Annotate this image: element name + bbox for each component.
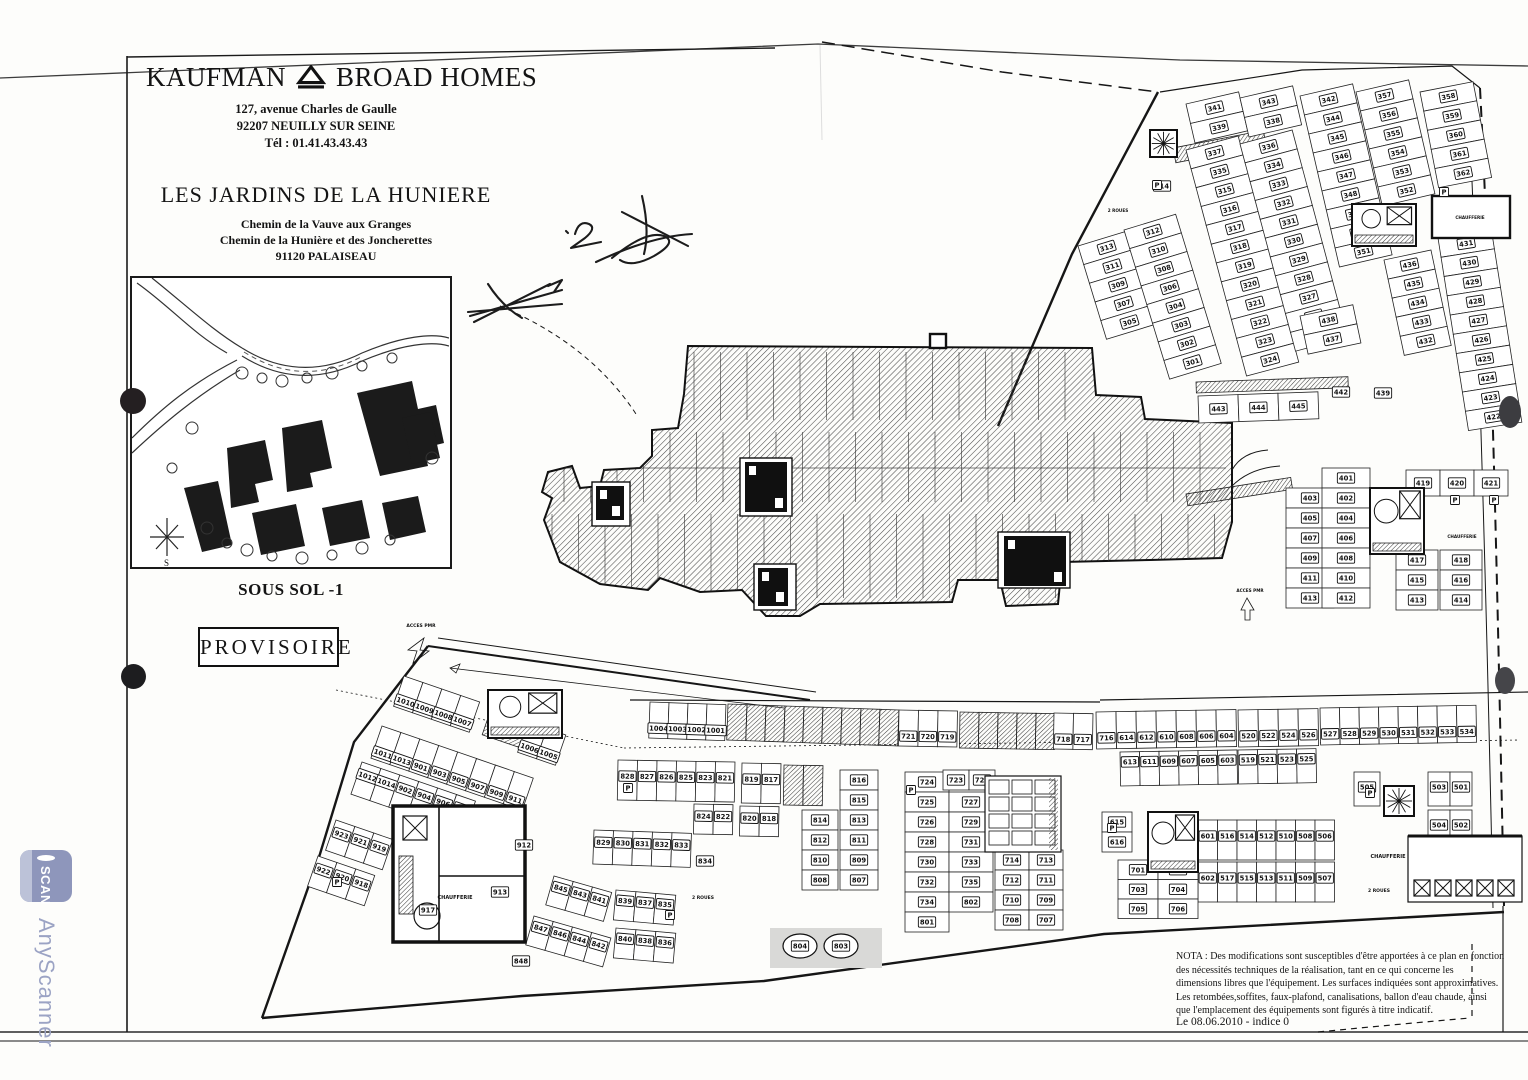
stall-number: 614 [1119,734,1134,742]
stall-number: 714 [1005,857,1019,865]
stall-number: 521 [1260,756,1275,764]
stall-number: 732 [920,879,934,887]
stall-number: 720 [921,733,936,741]
stall-number: 726 [920,819,934,827]
parking-row: 613611609607605603 [1120,750,1238,786]
stall-number: 402 [1339,495,1353,503]
brand-left: KAUFMAN [146,62,286,93]
stall-number: 1002 [687,726,706,735]
stall-number: 401 [1339,475,1353,483]
stall-number: 815 [852,797,866,805]
single-stall-label: 913 [491,887,508,897]
stall-number: 502 [1454,822,1468,830]
core-solid [758,568,788,606]
stall-number: 716 [1099,734,1114,742]
parking-stall [783,765,803,805]
parking-row: 602517515513511509507 [1198,862,1335,902]
parking-stall [879,709,899,746]
stall-number: 804 [793,943,807,951]
stall-number: 522 [1261,732,1276,740]
parking-stall [1016,713,1036,749]
stall-number: 701 [1131,866,1145,874]
single-stall-label: 848 [512,956,529,966]
stall-number: 527 [1323,730,1338,738]
stall-number: 839 [618,897,633,906]
stall-number: 829 [596,839,611,847]
building-mass [542,346,1232,616]
core-lockers [985,776,1061,852]
plan-label: CHAUFFERIE [437,895,473,901]
svg-text:P: P [1155,182,1160,190]
parking-row: 816815813811809807 [840,770,878,890]
parking-row: 1010100910081007 [393,676,480,733]
parking-p-icon: P [1440,188,1449,197]
stall-number: 407 [1303,535,1317,543]
core-caves [1408,836,1522,902]
parking-p-icon: P [1108,824,1117,833]
core-mix [1148,812,1198,872]
stall-number: 723 [949,777,963,785]
stall-number: 832 [655,841,670,849]
brand-right: BROAD HOMES [336,62,537,93]
stall-number: 612 [1139,733,1154,741]
stall-number: 821 [718,774,733,782]
stall-number: 442 [1334,389,1348,397]
stall-number: 506 [1318,833,1332,841]
stall-number: 516 [1220,833,1234,841]
stall-number: 1003 [668,725,687,734]
nota-line: Les retombées,soffites, faux-plafond, ca… [1176,991,1516,1005]
stall-number: 419 [1416,480,1430,488]
stall-number: 445 [1291,402,1306,410]
plan-label: ACCES PMR [406,623,436,629]
stall-number: 514 [1240,833,1254,841]
single-stall-label: 439 [1374,388,1391,398]
parking-row: 520522524526 [1238,709,1319,747]
stall-number: 814 [813,817,827,825]
stall-number: 420 [1450,480,1464,488]
stall-number: 531 [1401,729,1416,737]
stall-number: 735 [964,879,978,887]
stall-number: 717 [1076,736,1091,744]
motorcycle-spots: 804803 [770,928,882,968]
plan-label: 2 ROUES [692,895,714,901]
stall-number: 409 [1303,555,1317,563]
stall-number: 834 [698,858,712,866]
stall-number: 533 [1440,728,1455,736]
parking-stall [803,765,823,805]
stall-number: 802 [964,899,978,907]
stall-number: 443 [1211,405,1226,413]
stall-number: 503 [1432,784,1446,792]
stall-number: 526 [1301,731,1316,739]
parking-row: 436435434433432 [1384,250,1451,355]
parking-stall [727,704,747,741]
parking-row: 343338 [1240,86,1302,137]
svg-text:P: P [1110,825,1115,833]
parking-row [959,712,1055,750]
parking-row: 724725726728730732734801 [905,772,949,932]
stall-number: 403 [1303,495,1317,503]
stall-number: 416 [1454,577,1468,585]
stall-number: 718 [1056,736,1071,744]
stall-number: 707 [1039,917,1053,925]
stall-number: 414 [1454,597,1468,605]
provisoire-stamp: PROVISOIRE [198,627,339,667]
stall-number: 835 [657,900,672,909]
plan-label: CHAUFFERIE [1455,215,1484,220]
stall-number: 534 [1460,728,1475,736]
parking-stall [1035,713,1055,749]
stall-number: 730 [920,859,934,867]
core-mix [1352,204,1416,246]
stall-number: 406 [1339,535,1353,543]
plan-label: ACCES PMR [1236,588,1264,593]
stall-number: 820 [742,815,757,823]
level-label: SOUS SOL -1 [130,580,452,600]
parking-stall [997,713,1017,749]
stall-number: 828 [620,773,635,781]
project-address-line: Chemin de la Hunière et des Joncherettes [146,232,506,248]
stall-number: 822 [716,813,731,821]
company-brand: KAUFMAN BROAD HOMES [146,62,546,93]
stall-number: 818 [762,815,777,823]
anyscanner-watermark: SCAN AnyScanner [20,850,72,1080]
svg-text:P: P [335,879,340,887]
stall-number: 532 [1421,728,1436,736]
parking-row: 718717 [1053,713,1093,750]
stall-number: 520 [1241,732,1256,740]
parking-p-icon: P [333,878,342,887]
parking-stall [822,707,842,744]
project-address-line: 91120 PALAISEAU [146,248,506,264]
scan-icon-label: SCAN [39,866,54,905]
parking-p-icon: P [1153,181,1162,190]
stall-number: 504 [1432,822,1446,830]
parking-stall [765,705,785,742]
plan-label: 2 ROUES [1368,888,1390,894]
date-indice: Le 08.06.2010 - indice 0 [1176,1016,1289,1028]
single-stall-label: 442 [1332,387,1349,397]
plan-label: CHAUFFERIE [1370,854,1406,860]
parking-row: 1004100310021001 [648,702,728,741]
stall-number: 601 [1201,833,1215,841]
stall-number: 831 [635,840,650,848]
svg-text:S: S [164,558,169,566]
parking-row: 713711709707 [1029,850,1063,930]
parking-row: 527528529530531532533534 [1320,705,1477,745]
stall-number: 823 [698,774,713,782]
stall-number: 404 [1339,515,1353,523]
svg-text:P: P [1368,790,1373,798]
stall-number: 411 [1303,575,1317,583]
parking-row: 401402404406408410412 [1322,468,1370,608]
svg-text:P: P [626,785,631,793]
stall-number: 413 [1303,595,1317,603]
stall-number: 508 [1298,833,1312,841]
parking-stall [746,705,766,742]
stall-number: 825 [679,774,694,782]
parking-row: 443444445 [1198,392,1319,423]
stall-number: 708 [1005,917,1019,925]
stall-number: 444 [1251,404,1266,412]
stall-number: 724 [920,779,934,787]
address-line: Tél : 01.41.43.43.43 [146,135,486,152]
stall-number: 712 [1005,877,1019,885]
svg-text:P: P [668,912,673,920]
stall-number: 727 [964,799,978,807]
parking-stall [978,712,998,748]
stall-number: 913 [493,889,507,897]
stall-number: 501 [1454,784,1468,792]
core-mix [1370,488,1424,554]
watermark-app-name: AnyScanner [33,918,59,1048]
stall-number: 413 [1410,597,1424,605]
single-stall-label: 912 [515,840,532,850]
stall-number: 705 [1131,905,1145,913]
stall-number: 525 [1299,755,1314,763]
stall-number: 704 [1171,886,1185,894]
nota-line: des nécessités techniques de la réalisat… [1176,964,1516,978]
project-address: Chemin de la Vauve aux Granges Chemin de… [146,216,506,264]
stall-number: 917 [421,907,435,915]
stall-number: 608 [1179,733,1194,741]
stall-number: 719 [940,733,955,741]
parking-row: 615616 [1102,812,1132,852]
parking-stall [860,709,880,746]
stall-number: 611 [1142,758,1157,766]
stall-number: 509 [1298,875,1312,883]
company-address: 127, avenue Charles de Gaulle 92207 NEUI… [146,101,486,152]
parking-row: 418416414 [1440,550,1482,610]
core-solid [1004,536,1066,586]
plan-label: CHAUFFERIE [1447,534,1476,539]
stall-number: 417 [1410,557,1424,565]
stall-number: 517 [1220,875,1234,883]
stall-number: 807 [852,877,866,885]
parking-row: 601516514512510508506 [1198,820,1335,860]
parking-row [727,704,899,746]
stall-number: 609 [1162,758,1177,766]
stall-number: 606 [1199,732,1214,740]
stall-number: 412 [1339,595,1353,603]
stall-number: 810 [813,857,827,865]
stall-number: 826 [659,773,674,781]
stall-number: 602 [1201,875,1215,883]
kaufman-broad-logo-icon [296,65,326,90]
stall-number: 816 [852,777,866,785]
parking-row: 829830831832833 [593,830,692,867]
parking-p-icon: P [624,784,633,793]
stall-number: 848 [514,958,528,966]
stall-number: 410 [1339,575,1353,583]
stall-number: 808 [813,877,827,885]
parking-row: 845843841 [546,876,612,921]
single-stall-label: 917 [419,905,436,915]
location-inset-map: S [130,276,452,569]
stall-number: 838 [638,936,653,945]
parking-stall [841,708,861,745]
hole-punch [1499,396,1521,428]
stall-number: 529 [1362,730,1377,738]
stall-number: 519 [1241,756,1256,764]
parking-p-icon: P [1366,789,1375,798]
stall-number: 610 [1159,733,1174,741]
anyscanner-icon: SCAN [20,850,72,902]
single-stall-label: 834 [696,856,713,866]
stall-number: 706 [1171,905,1185,913]
stall-number: 607 [1181,757,1196,765]
parking-row: 840838836 [613,928,675,963]
parking-stall [803,707,823,744]
svg-text:P: P [1453,497,1458,505]
stall-number: 833 [674,841,689,849]
stall-number: 405 [1303,515,1317,523]
parking-p-icon: P [666,911,675,920]
stall-number: 523 [1280,756,1295,764]
project-title: LES JARDINS DE LA HUNIERE [146,182,506,208]
stall-number: 840 [618,935,633,944]
stall-number: 830 [616,839,631,847]
scanned-plan-page: 3133113093073053123103083063043033023013… [0,0,1528,1080]
nota-line: NOTA : Des modifications sont susceptibl… [1176,950,1516,964]
stall-number: 711 [1039,877,1053,885]
parking-row: 503501 [1428,772,1472,806]
stall-number: 710 [1005,897,1019,905]
stall-number: 819 [744,776,759,784]
stall-number: 709 [1039,897,1053,905]
hole-punch [1495,667,1515,694]
stall-number: 513 [1259,875,1273,883]
parking-row: 716614612610608606604 [1096,710,1237,749]
stall-number: 439 [1376,390,1390,398]
stall-number: 728 [920,839,934,847]
stall-number: 530 [1382,729,1397,737]
nota-line: dimensions libres que l'équipement. Les … [1176,977,1516,991]
stall-number: 605 [1201,757,1216,765]
letterhead: KAUFMAN BROAD HOMES 127, avenue Charles … [146,62,546,264]
stall-number: 817 [764,776,779,784]
stall-number: 811 [852,837,866,845]
compass-icon [150,518,184,556]
stall-number: 421 [1484,480,1498,488]
stall-number: 515 [1240,875,1254,883]
parking-row: 721720719 [898,710,957,747]
stall-number: 415 [1410,577,1424,585]
parking-row: 519521523525 [1238,749,1317,784]
stall-number: 813 [852,817,866,825]
stall-number: 713 [1039,857,1053,865]
parking-row: 814812810808 [802,810,838,890]
address-line: 127, avenue Charles de Gaulle [146,101,486,118]
core-room [930,334,946,348]
stall-number: 809 [852,857,866,865]
stall-number: 512 [1259,833,1273,841]
parking-row [783,765,823,806]
parking-row: 820818 [739,806,779,837]
project-address-line: Chemin de la Vauve aux Granges [146,216,506,232]
svg-text:P: P [1492,497,1497,505]
stall-number: 803 [834,943,848,951]
hatched-strip [1196,377,1348,393]
stall-number: 721 [901,733,916,741]
parking-row: 824822 [693,804,733,835]
stall-number: 604 [1219,732,1234,740]
plan-label: 2 ROUES [1108,208,1128,213]
hole-punch [121,664,146,689]
parking-row: 828827826825823821 [617,760,735,802]
stall-number: 511 [1279,875,1293,883]
parking-row: 847846844842 [526,916,611,967]
stall-number: 524 [1281,731,1296,739]
stall-number: 837 [638,898,653,907]
stall-number: 824 [696,813,711,821]
stall-number: 1001 [706,726,725,735]
stall-number: 801 [920,919,934,927]
stall-number: 507 [1318,875,1332,883]
stall-number: 1004 [649,724,668,733]
parking-row: 819817 [741,763,781,804]
svg-text:P: P [1442,189,1447,197]
parking-p-icon: P [907,786,916,795]
stall-number: 812 [813,837,827,845]
parking-stall [959,712,979,748]
hole-punch [120,388,146,414]
core-big [393,806,525,942]
stall-number: 603 [1220,756,1235,764]
stall-number: 703 [1131,886,1145,894]
stall-number: 418 [1454,557,1468,565]
stall-number: 510 [1279,833,1293,841]
stall-number: 912 [517,842,531,850]
stall-number: 734 [920,899,934,907]
parking-stall [784,706,804,743]
address-line: 92207 NEUILLY SUR SEINE [146,118,486,135]
stall-number: 827 [640,773,655,781]
stall-number: 725 [920,799,934,807]
stall-number: 733 [964,859,978,867]
stall-number: 408 [1339,555,1353,563]
core-fan [1384,786,1414,816]
core-solid [596,486,624,520]
nota-block: NOTA : Des modifications sont susceptibl… [1176,950,1516,1018]
core-fan [1150,130,1177,157]
parking-p-icon: P [1490,496,1499,505]
core-mix [488,690,562,738]
parking-p-icon: P [1451,496,1460,505]
camera-lens-icon [37,855,55,861]
stall-number: 613 [1123,758,1138,766]
svg-text:P: P [909,787,914,795]
stall-number: 616 [1110,839,1124,847]
stall-number: 836 [657,938,672,947]
parking-row: 714712710708 [995,850,1029,930]
parking-row: 417415413 [1396,550,1438,610]
stall-number: 528 [1343,730,1358,738]
stall-number: 731 [964,839,978,847]
stall-number: 729 [964,819,978,827]
core-solid [745,462,787,512]
